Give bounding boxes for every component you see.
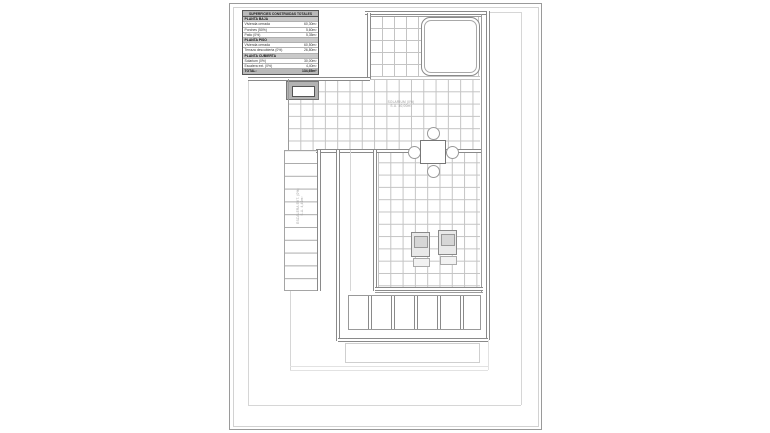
tile-edge-right [481, 14, 482, 292]
chair-bottom [427, 165, 440, 178]
tile-edge-left-mid [288, 79, 289, 150]
sun-lounger-2-footrest [440, 256, 457, 266]
castillete-block [286, 81, 319, 100]
wall-step [248, 77, 370, 81]
plot-boundary-bottom [248, 405, 521, 406]
garden-line-h1 [290, 366, 488, 367]
wall-terrace-edge [373, 150, 377, 291]
chair-right [446, 146, 459, 159]
corridor-line [350, 150, 351, 291]
area-summary-table: SUPERFICIES CONSTRUIDAS TOTALES PLANTA B… [242, 10, 319, 75]
jacuzzi-inner-rim [424, 20, 477, 73]
tile-edge-bottom [375, 287, 483, 291]
castillete-skylight [292, 86, 315, 97]
wall-right [486, 11, 490, 340]
wall-left-lower [336, 150, 340, 341]
plot-boundary-top [488, 12, 521, 13]
garden-line-v2 [488, 340, 489, 370]
tile-edge-top [370, 16, 482, 17]
round-table-top [420, 140, 446, 164]
pergola-beam-3 [414, 296, 418, 329]
chair-top [427, 127, 440, 140]
pergola-band [348, 295, 481, 330]
stairs-label-line2: S.U. 4,40m² [300, 176, 304, 236]
planter-step [345, 343, 480, 363]
stairs-label: ESCALERA EXT. (0%) S.U. 4,40m² [296, 176, 304, 236]
plot-boundary-left [248, 78, 249, 405]
wall-top [365, 11, 488, 15]
pergola-beam-1 [368, 296, 372, 329]
solarium-label-line2: S.U. 30,00m² [372, 104, 430, 108]
pergola-beam-4 [437, 296, 441, 329]
sun-lounger-1-footrest [413, 258, 430, 268]
wall-left-upper [367, 13, 371, 79]
garden-line-vertical [290, 291, 291, 370]
solarium-label: SOLARIUM (0%) S.U. 30,00m² [372, 100, 430, 108]
jacuzzi-outline [421, 17, 480, 76]
plot-boundary-right [521, 12, 522, 405]
stairs-right-edge [317, 150, 321, 291]
sun-lounger-1 [411, 232, 430, 257]
sun-lounger-1-cushion [414, 236, 428, 248]
pergola-beam-2 [391, 296, 395, 329]
tile-edge-bottom-outer [375, 292, 483, 293]
chair-left [408, 146, 421, 159]
floor-plan-sheet: SOLARIUM (0%) S.U. 30,00m² ESCALERA EXT.… [0, 0, 770, 433]
garden-line-h2 [290, 370, 488, 371]
area-table-row-total: TOTAL: 134,65m² [243, 69, 318, 74]
sun-lounger-2-cushion [441, 234, 455, 246]
wall-bottom [338, 338, 488, 342]
sun-lounger-2 [438, 230, 457, 255]
pergola-beam-5 [460, 296, 464, 329]
